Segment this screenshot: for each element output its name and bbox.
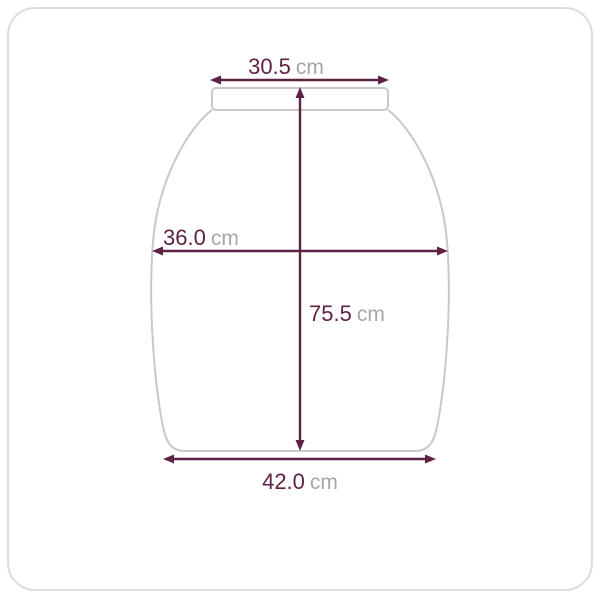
measurement-diagram-page: 30.5cm 36.0cm 75.5cm 42.0cm (0, 0, 600, 600)
top-width-unit: cm (296, 56, 324, 79)
arrow-right-icon (437, 247, 448, 256)
hem-width-unit: cm (310, 471, 338, 494)
body-width-unit: cm (211, 227, 239, 250)
top-width-value: 30.5 (248, 54, 291, 79)
arrow-left-icon (152, 247, 163, 256)
hem-width-label: 42.0cm (262, 471, 338, 493)
arrow-left-icon (163, 455, 174, 464)
hem-width-value: 42.0 (262, 469, 305, 494)
arrow-right-icon (378, 76, 389, 85)
body-width-value: 36.0 (163, 225, 206, 250)
garment-diagram-canvas (0, 0, 600, 600)
dimension-line-length (296, 87, 305, 451)
length-unit: cm (357, 303, 385, 326)
arrow-left-icon (210, 76, 221, 85)
length-value: 75.5 (309, 301, 352, 326)
dimension-line-hem-width (163, 455, 436, 464)
length-label: 75.5cm (309, 303, 385, 325)
body-width-label: 36.0cm (163, 227, 239, 249)
arrow-down-icon (296, 440, 305, 451)
arrow-right-icon (425, 455, 436, 464)
top-width-label: 30.5cm (248, 56, 324, 78)
